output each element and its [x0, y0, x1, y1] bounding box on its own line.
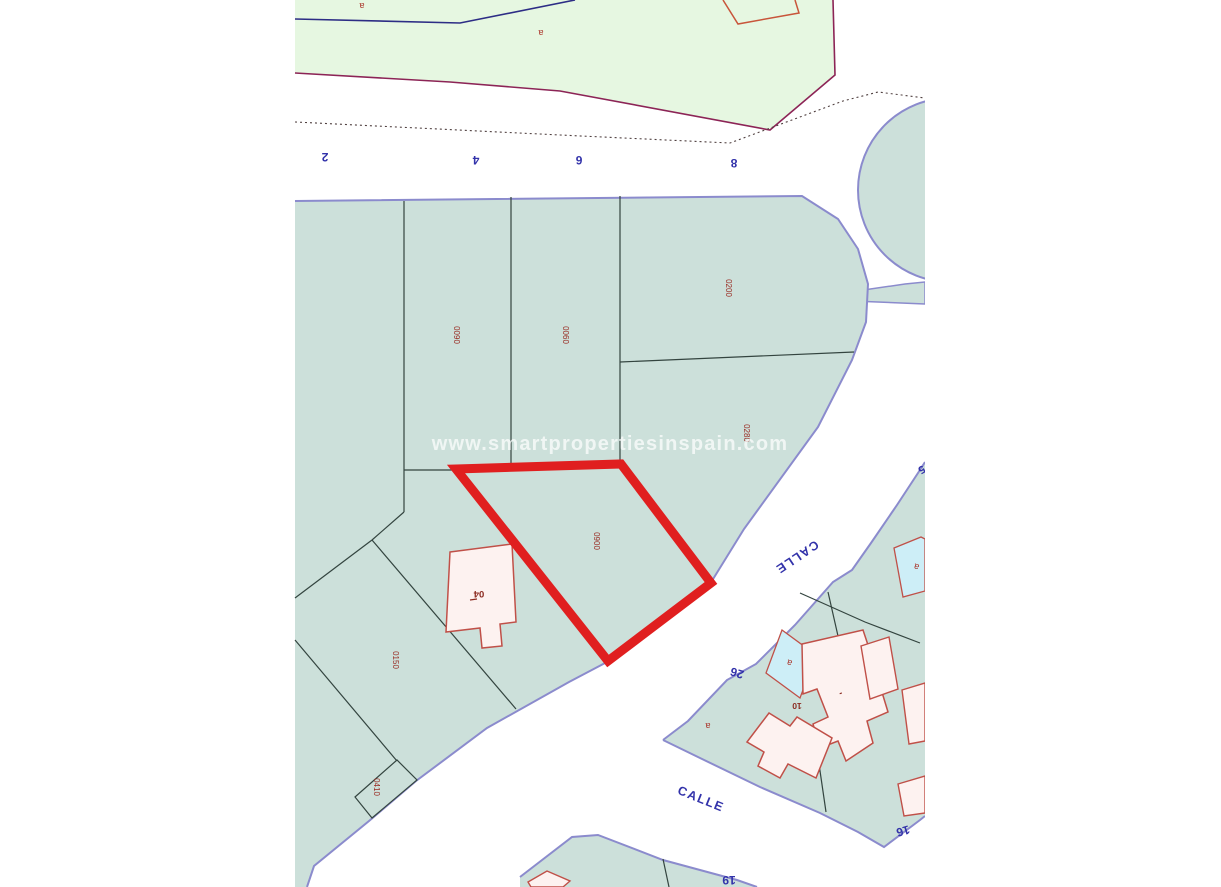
- street-number: 19: [722, 873, 736, 887]
- street-number: 2: [321, 150, 328, 164]
- building-label-04: 04: [473, 588, 484, 599]
- street-number: 4: [472, 153, 479, 167]
- street-name-calle-lower: CALLE: [676, 783, 727, 814]
- watermark: www.smartpropertiesinspain.com: [431, 433, 788, 455]
- parcel-label: 0150: [391, 651, 400, 669]
- roundabout: [858, 98, 1042, 282]
- area-letter: a: [359, 1, 364, 11]
- area-letter: a: [705, 721, 710, 731]
- parcel-label-highlighted-plot: 0900: [592, 532, 601, 550]
- map-image: 2 4 6 8 26 16 19 5 CALLE CALLE 0090 0060…: [0, 0, 1221, 887]
- parcel-label: 0410: [372, 778, 381, 796]
- street-number: 26: [728, 664, 745, 681]
- area-letter: a: [538, 28, 543, 38]
- parcel-label: 0060: [561, 326, 570, 344]
- cadastral-map-screenshot: 2 4 6 8 26 16 19 5 CALLE CALLE 0090 0060…: [0, 0, 1221, 887]
- street-number: 6: [575, 153, 582, 167]
- parcel-label: 0200: [724, 279, 733, 297]
- building-label-10: 10: [792, 701, 802, 711]
- street-number: 8: [730, 156, 737, 170]
- parcel-label: 0090: [452, 326, 461, 344]
- green-zone: [295, 0, 835, 130]
- street-name-calle-upper: CALLE: [773, 537, 822, 576]
